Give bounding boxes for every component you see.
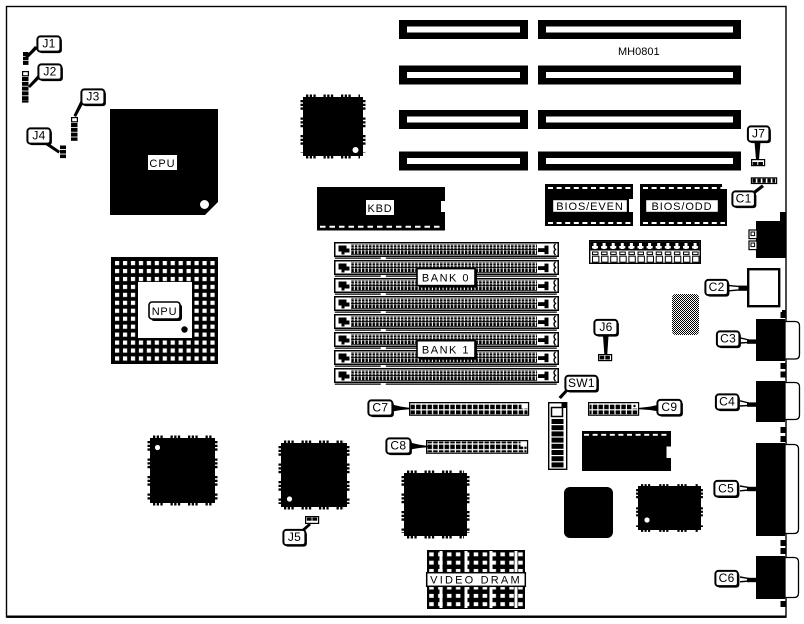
svg-text:J5: J5	[288, 530, 301, 544]
svg-text:C9: C9	[661, 400, 677, 414]
svg-text:J7: J7	[752, 126, 765, 140]
svg-text:SW1: SW1	[568, 376, 595, 390]
svg-text:C2: C2	[709, 280, 725, 294]
svg-text:C8: C8	[390, 439, 406, 453]
svg-text:C1: C1	[736, 191, 752, 205]
svg-text:BIOS/ODD: BIOS/ODD	[652, 201, 713, 213]
svg-text:J1: J1	[42, 36, 55, 50]
svg-text:J3: J3	[86, 89, 99, 103]
svg-text:MH0801: MH0801	[618, 46, 660, 58]
svg-text:J6: J6	[599, 320, 612, 334]
svg-text:VIDEO DRAM: VIDEO DRAM	[430, 575, 522, 587]
svg-text:C6: C6	[719, 571, 735, 585]
svg-text:J2: J2	[43, 64, 56, 78]
svg-text:KBD: KBD	[367, 203, 392, 215]
svg-text:CPU: CPU	[149, 158, 175, 170]
svg-text:C4: C4	[719, 394, 735, 408]
svg-text:BIOS/EVEN: BIOS/EVEN	[556, 201, 623, 213]
svg-text:BANK 0: BANK 0	[422, 273, 470, 285]
svg-text:J4: J4	[32, 128, 45, 142]
svg-text:C5: C5	[718, 481, 734, 495]
svg-text:C7: C7	[372, 401, 388, 415]
svg-text:NPU: NPU	[152, 306, 178, 318]
svg-text:BANK 1: BANK 1	[422, 345, 470, 357]
svg-text:C3: C3	[720, 331, 736, 345]
